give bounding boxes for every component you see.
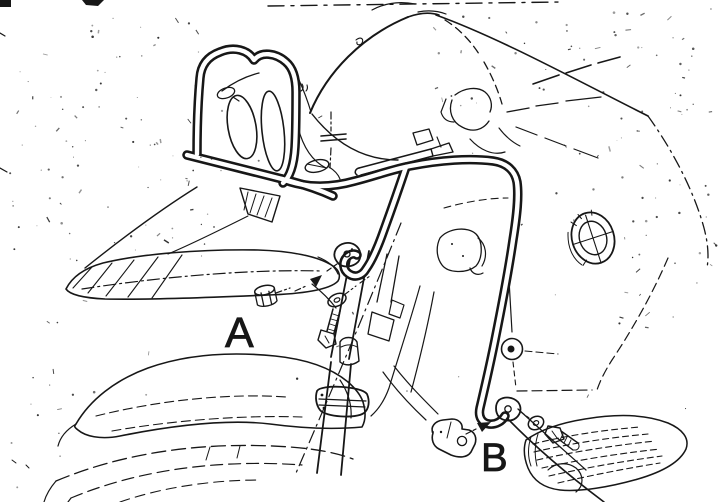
scan-noise-path [85, 140, 86, 141]
scan-noise-path [621, 137, 622, 138]
scan-noise-path [579, 153, 581, 155]
handlebar-sketch [441, 57, 620, 158]
scan-noise-path [688, 69, 689, 70]
guard-tube-core [187, 49, 518, 424]
scan-noise-path [188, 119, 191, 123]
scan-noise-path [47, 321, 50, 323]
scan-noise-path [472, 153, 473, 154]
horn-sketch-path [437, 229, 481, 271]
scan-noise-path [201, 224, 202, 225]
scan-noise-path [675, 93, 676, 94]
scan-noise-path [710, 264, 712, 266]
front-fork-path [341, 345, 357, 347]
scan-noise-path [619, 317, 623, 318]
scan-noise-path [213, 226, 215, 228]
scan-noise-path [656, 216, 658, 218]
frame-downtube [506, 409, 604, 502]
windscreen-path [310, 17, 408, 113]
scan-noise-path [506, 32, 507, 34]
spacer-bolt-b-path [447, 422, 451, 438]
scan-noise-path [20, 71, 21, 72]
scan-noise-path [188, 22, 190, 24]
scan-noise-path [640, 165, 644, 168]
scan-noise-path [710, 8, 711, 9]
scan-noise-path [172, 155, 173, 156]
front-tire-path [120, 480, 260, 502]
scan-noise-path [107, 206, 108, 207]
scan-noise-path [645, 327, 649, 328]
scan-noise-path [685, 408, 686, 409]
scan-noise-path [116, 56, 117, 57]
fuel-tank-path [597, 258, 668, 390]
scan-noise-path [614, 34, 616, 36]
windscreen [297, 13, 502, 168]
spacer-bolt-b [432, 419, 476, 457]
scan-noise-path [16, 486, 18, 488]
front-beak-path [73, 255, 182, 298]
scan-noise-path [201, 255, 202, 256]
washer-a-path [333, 297, 340, 303]
scan-noise-path [157, 37, 159, 39]
scan-noise-path [674, 262, 676, 264]
scan-noise-path [73, 157, 74, 158]
installation-diagram: A B [0, 0, 727, 502]
scan-noise-path [90, 30, 92, 32]
scan-noise-path [13, 248, 15, 250]
windscreen-path [484, 62, 502, 104]
scan-noise-path [555, 192, 557, 194]
arrow-a [310, 275, 322, 287]
scan-noise-path [137, 97, 138, 98]
scan-noise-path [125, 118, 127, 120]
scan-noise-path [476, 102, 477, 103]
scan-noise-path [172, 237, 173, 238]
scan-noise-path [641, 110, 643, 112]
scan-noise-path [57, 409, 62, 410]
scan-noise-path [406, 390, 408, 392]
scan-noise-path [638, 254, 640, 256]
scan-noise-path [91, 35, 94, 38]
scan-noise-path [667, 16, 671, 20]
washer-b-path [526, 414, 546, 433]
scan-noise-path [681, 114, 682, 115]
scan-noise-path [37, 414, 39, 416]
spacer-bolt-b-path [432, 419, 476, 457]
front-fork-path [368, 312, 394, 341]
front-turn-signal [304, 158, 340, 179]
scan-noise-path [157, 233, 160, 236]
scan-noise-path [141, 55, 143, 57]
scan-noise-path [75, 116, 77, 119]
scan-noise-path [204, 243, 205, 244]
scan-noise-path [524, 43, 525, 44]
scan-noise-path [112, 18, 113, 19]
scan-noise-path [190, 209, 193, 210]
windscreen-arm-path [431, 143, 453, 156]
scan-noise-path [18, 226, 20, 228]
scan-noise-path [613, 11, 616, 14]
scan-noise-path [145, 394, 147, 396]
scan-noise-path [60, 96, 62, 98]
scan-noise-path [30, 404, 31, 405]
scan-noise-path [48, 169, 50, 171]
scan-noise-path [682, 38, 684, 39]
scan-noise-path [121, 127, 124, 128]
scan-noise-path [9, 172, 11, 174]
windscreen-path [408, 13, 439, 17]
scan-noise-path [451, 95, 453, 97]
scan-noise-path [60, 222, 63, 225]
scan-noise-path [640, 13, 644, 15]
front-fork-path [383, 366, 438, 420]
fork-clamp [316, 387, 369, 417]
scan-noise-path [79, 190, 81, 194]
scan-noise-path [12, 205, 14, 207]
scan-noise-path [164, 240, 169, 243]
scan-noise-path [105, 72, 106, 73]
front-tire-path [206, 446, 240, 460]
spacer-bolt-b-path [440, 431, 442, 433]
front-fender [58, 354, 365, 446]
scan-noise-path [435, 88, 438, 89]
fuel-tank [418, 11, 708, 390]
scan-noise-path [543, 88, 545, 90]
scan-noise-path [566, 24, 568, 26]
scan-noise-path [22, 144, 23, 145]
front-fender-path [58, 380, 351, 446]
scan-noise-path [641, 197, 643, 199]
scan-noise-path [69, 233, 71, 235]
front-tire [12, 445, 353, 502]
scan-noise-path [194, 85, 197, 88]
scan-noise-path [51, 97, 52, 98]
callout-a-label: A [225, 309, 254, 357]
scan-noise-path [147, 187, 148, 188]
windscreen-path [312, 114, 398, 160]
scan-noise-path [673, 37, 674, 38]
spacer-bolt-b-path [457, 436, 466, 445]
washer-a-path [326, 291, 348, 310]
scan-noise-path [59, 455, 61, 457]
scan-noise-path [566, 30, 568, 32]
fork-clamp-path [321, 394, 324, 397]
scan-noise-path [656, 54, 658, 56]
adjuster-screw-path [321, 134, 346, 141]
scan-noise-path [592, 188, 594, 190]
scan-noise-path [145, 225, 146, 226]
scan-noise-path [220, 170, 221, 171]
front-beak-path [168, 216, 248, 254]
scan-noise-path [186, 180, 187, 181]
scan-artifacts-path [0, 0, 11, 7]
scan-noise-path [43, 54, 48, 55]
scan-noise-path [492, 66, 496, 69]
scan-noise-path [200, 157, 201, 158]
front-fender-path [96, 396, 286, 416]
scan-noise-path [693, 104, 694, 105]
scan-noise-path [41, 170, 42, 171]
diagram-page: A B [0, 0, 727, 502]
scan-noise-path [539, 87, 541, 89]
scan-noise-path [625, 30, 631, 31]
scan-noise-path [705, 185, 707, 187]
scan-noise-path [682, 77, 685, 78]
scan-noise-path [119, 56, 121, 58]
hex-spacer-a-path [255, 288, 278, 308]
scan-noise-path [77, 164, 79, 166]
scan-noise-path [438, 52, 440, 54]
scan-noise-path [613, 31, 615, 33]
front-fork-path [389, 300, 404, 318]
engine-case [502, 262, 593, 391]
scan-noise-path [626, 13, 628, 15]
bmw-roundel-path [566, 209, 621, 269]
handlebar-sketch-path [499, 128, 520, 146]
bolt-a-path [325, 336, 329, 343]
windscreen-path [299, 80, 311, 112]
scan-noise-path [571, 46, 573, 48]
scan-noise-path [602, 91, 604, 93]
headlight-lenses-path [216, 85, 236, 101]
scan-noise-path [636, 269, 640, 273]
front-tire-path [44, 481, 71, 502]
scan-noise-path [318, 116, 322, 118]
scan-noise-path [160, 139, 161, 143]
scan-noise-path [514, 52, 516, 54]
scan-noise-path [521, 224, 523, 225]
scan-noise-path [296, 378, 298, 380]
engine-case-path [508, 346, 515, 353]
scan-noise-path [686, 109, 688, 111]
scan-noise-path [76, 260, 78, 262]
scan-noise-path [91, 25, 93, 27]
headlight-lenses-path [233, 97, 239, 101]
scan-noise-path [646, 235, 647, 236]
scan-noise-path [655, 198, 656, 199]
handlebar-sketch-path [450, 100, 489, 130]
cylinder-fins-path [533, 427, 662, 483]
scan-noise-path [595, 47, 601, 48]
scan-noise-path [138, 167, 139, 168]
scan-noise-path [17, 111, 19, 114]
engine-case-path [525, 351, 558, 354]
scan-noise-path [258, 160, 260, 162]
front-fork-path [317, 362, 351, 475]
scan-noise-path [28, 81, 29, 82]
scan-noise-path [175, 18, 178, 23]
washer-b [526, 414, 546, 433]
windscreen-arm-path [437, 137, 441, 147]
scan-noise-path [637, 46, 639, 48]
scan-noise-path [56, 128, 59, 131]
scan-noise-path [692, 47, 695, 50]
scan-noise-path [620, 117, 622, 119]
scan-artifacts-path [0, 33, 7, 172]
scan-noise-path [62, 109, 63, 110]
callout-b-label: B [481, 436, 508, 480]
scan-noise-path [97, 70, 99, 72]
scan-noise-path [609, 146, 610, 151]
scan-noise-path [673, 316, 674, 317]
scan-noise-path [680, 94, 682, 96]
windscreen-arm-path [413, 129, 433, 145]
fuel-tank-path [436, 15, 648, 116]
horn-sketch-path [451, 243, 453, 245]
horn-sketch [437, 198, 508, 274]
scan-noise-path [715, 244, 717, 246]
front-tire-path [56, 445, 353, 481]
scan-noise-path [61, 176, 63, 178]
headlight-lenses [216, 73, 288, 172]
fork-clamp-path [323, 407, 326, 410]
scan-noise-path [153, 45, 155, 46]
scan-noise-path [587, 395, 589, 398]
scan-noise-path [135, 250, 136, 251]
scan-noise-path [442, 98, 443, 103]
scan-noise-path [632, 257, 633, 258]
scan-noise-path [579, 48, 580, 49]
scan-noise-path [707, 193, 709, 195]
scan-noise-path [636, 130, 638, 132]
scan-noise-path [57, 322, 59, 324]
scan-noise-path [573, 219, 574, 221]
scan-noise-path [207, 214, 208, 215]
scan-noise-path [657, 163, 658, 164]
scan-noise-path [432, 431, 434, 433]
scan-noise-path [617, 140, 618, 141]
headlight-lenses-path [222, 73, 259, 91]
washer-b-path [532, 420, 539, 427]
cylinder-fins [524, 416, 687, 492]
cylinder-fins-path [529, 434, 539, 466]
scan-noise-path [588, 106, 590, 108]
scan-noise-path [156, 142, 158, 144]
scan-noise-path [72, 394, 74, 396]
scan-noise-path [352, 312, 353, 315]
horn-sketch-path [462, 255, 464, 257]
guard-tube-outline [187, 49, 518, 424]
washer-a [326, 291, 348, 310]
scan-noise-path [93, 391, 96, 394]
bmw-roundel [561, 206, 621, 271]
scan-noise-path [488, 17, 490, 19]
scan-noise-path [545, 69, 546, 70]
scan-noise-path [638, 130, 639, 131]
scan-noise-path [669, 179, 671, 181]
scan-noise-path [132, 141, 134, 143]
scan-noise-path [678, 212, 680, 214]
scan-noise-path [336, 346, 339, 347]
scan-noise-path [618, 322, 620, 324]
scan-noise-path [624, 292, 628, 293]
handlebar-sketch-path [507, 97, 601, 112]
engine-case-path [513, 362, 516, 388]
scan-noise-path [641, 47, 642, 48]
scan-noise-path [535, 21, 537, 23]
scan-noise-path [597, 155, 598, 157]
fork-clamp-path [316, 387, 369, 417]
front-tire-path [71, 463, 302, 498]
scan-noise-path [645, 220, 648, 223]
scan-noise-path [433, 27, 436, 30]
scan-noise-path [198, 51, 199, 52]
scan-noise-path [221, 110, 223, 112]
scan-noise-path [11, 442, 13, 444]
scan-noise-path [148, 351, 149, 355]
scan-noise-path [458, 376, 459, 377]
scan-noise-path [49, 197, 51, 199]
scan-noise-path [114, 242, 115, 243]
scan-noise-path [100, 82, 102, 84]
scan-noise-path [83, 300, 87, 301]
scan-noise-path [555, 294, 556, 295]
scan-noise-path [196, 30, 199, 34]
scan-noise-path [130, 235, 132, 237]
scan-noise-path [154, 144, 156, 146]
front-fork-path [377, 254, 399, 302]
scan-noise-path [680, 184, 681, 185]
headlight-lenses-path [223, 93, 262, 161]
scan-noise-path [150, 145, 151, 146]
front-tire-path [12, 460, 29, 468]
scan-noise-path [70, 259, 71, 260]
scan-noise-path [82, 106, 84, 108]
scan-noise-path [60, 203, 62, 204]
scan-noise-path [72, 146, 73, 147]
windscreen-path [356, 38, 363, 45]
scan-noise-path [37, 225, 38, 226]
scan-noise-path [691, 55, 692, 56]
scan-noise-path [471, 97, 473, 99]
scan-noise-path [35, 126, 36, 127]
handlebar-sketch-path [455, 88, 491, 112]
scan-noise-path [49, 385, 50, 386]
engine-case-path [517, 390, 592, 391]
scan-noise-path [141, 119, 142, 120]
scan-noise-path [621, 176, 623, 178]
scan-noise-path [461, 50, 462, 53]
scan-noise-path [645, 312, 649, 316]
scan-noise-path [160, 179, 161, 180]
scan-noise-path [95, 89, 97, 91]
handlebar-sketch-path [516, 127, 598, 158]
windscreen-arm-path [355, 168, 359, 175]
scan-noise-path [462, 16, 464, 18]
scan-artifacts [0, 0, 560, 172]
cylinder-fins-path [524, 416, 687, 491]
scan-noise-path [627, 65, 631, 68]
headlight-lenses-path [258, 90, 288, 172]
front-fork-path [340, 338, 359, 365]
mounting-tabs-path [505, 406, 511, 412]
horn-sketch-path [444, 198, 508, 208]
scan-noise-path [583, 59, 585, 61]
fuel-tank-path [648, 116, 708, 268]
scan-noise-path [58, 433, 59, 434]
scan-noise-path [699, 252, 701, 254]
scan-noise-path [639, 294, 640, 296]
scan-noise-path [53, 369, 54, 374]
scan-noise-path [171, 228, 173, 230]
scan-noise-path [670, 107, 671, 108]
scan-noise-path [706, 216, 707, 217]
scan-noise-path [32, 377, 34, 379]
scan-noise-path [98, 106, 100, 108]
scan-noise-path [65, 140, 67, 142]
scan-noise-path [696, 282, 697, 283]
scan-noise-path [140, 27, 141, 28]
scan-noise-path [192, 170, 194, 172]
